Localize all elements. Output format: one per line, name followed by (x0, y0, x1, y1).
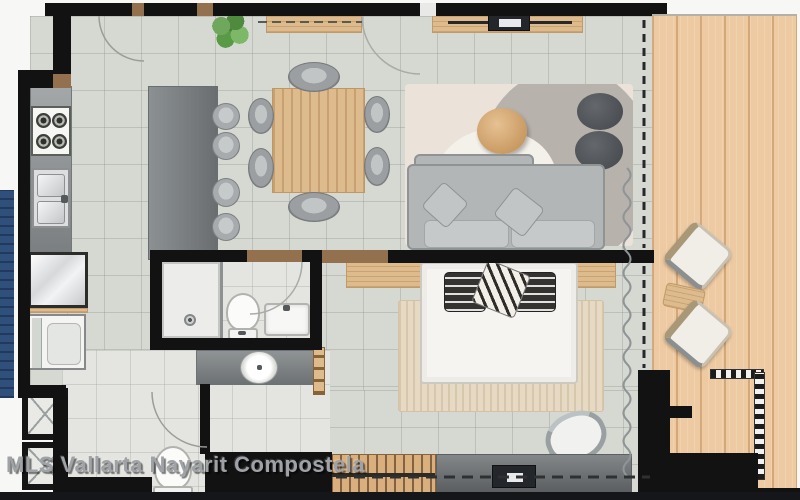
kitchen-island (148, 86, 218, 260)
dining-chair (364, 147, 390, 186)
stove-icon (31, 106, 71, 156)
burner-icon (52, 134, 67, 149)
toilet-bowl (226, 293, 260, 331)
tv-screen (507, 473, 523, 482)
shower (162, 262, 220, 338)
pool-water-strip (0, 190, 14, 398)
faucet-icon (61, 195, 68, 203)
burner-icon (52, 113, 67, 128)
bar-stool (212, 132, 240, 160)
burner-icon (36, 113, 51, 128)
tv-living (488, 14, 530, 31)
shower-drain-icon (184, 314, 196, 326)
plant-icon (208, 10, 252, 50)
watermark-text: MLS Vallarta Nayarit Compostela (6, 452, 365, 478)
door-frame (132, 3, 144, 16)
towel-rack (313, 347, 325, 395)
deck-wall-stub (668, 406, 692, 418)
refrigerator (28, 252, 88, 308)
wall-top (144, 3, 197, 16)
bar-stool (212, 178, 240, 207)
wall-closet-divider (200, 384, 210, 454)
wall-bathroom-right (310, 250, 322, 350)
dining-chair (248, 98, 274, 134)
sink-faucet-icon (283, 305, 290, 311)
burner-icon (36, 134, 51, 149)
wall-bathroom-top (150, 250, 247, 262)
wall-left (18, 86, 30, 392)
dining-chair (248, 148, 274, 188)
bedroom-threshold (322, 250, 388, 263)
window-gap (420, 3, 436, 16)
fridge-shelf (28, 308, 88, 313)
tv-screen (499, 19, 521, 27)
shower-glass (220, 262, 223, 338)
washer-drum (47, 323, 81, 365)
kitchen-sink (32, 168, 70, 228)
wall-entry-stub (53, 8, 71, 74)
bar-stool (212, 103, 240, 130)
wall-bathroom-left (150, 250, 162, 350)
sink-basin (37, 201, 65, 224)
dining-chair (288, 62, 340, 92)
sink-basin (37, 174, 65, 197)
entry-door (53, 74, 71, 88)
washer-panel (32, 318, 42, 368)
dining-chair (364, 96, 390, 133)
bottom-edge-band (0, 492, 800, 500)
sideboard (266, 13, 362, 33)
coffee-table (477, 108, 527, 154)
dining-table (272, 88, 365, 193)
tv-bedroom (492, 465, 536, 488)
wall-top (436, 3, 667, 16)
sofa-seat-cushion (424, 220, 509, 248)
dining-chair (288, 192, 340, 222)
door-frame (197, 3, 213, 16)
wall-bathroom-bottom (150, 338, 322, 350)
bathroom-door (247, 250, 302, 262)
toilet-flush-icon (238, 331, 246, 335)
washer (28, 314, 86, 370)
pouf (577, 93, 623, 130)
wall-living-bedroom (388, 250, 654, 263)
bar-stool (212, 213, 240, 241)
wall-top (213, 3, 420, 16)
floor-plan: MLS Vallarta Nayarit Compostela (0, 0, 800, 500)
vessel-drain-icon (257, 365, 262, 370)
